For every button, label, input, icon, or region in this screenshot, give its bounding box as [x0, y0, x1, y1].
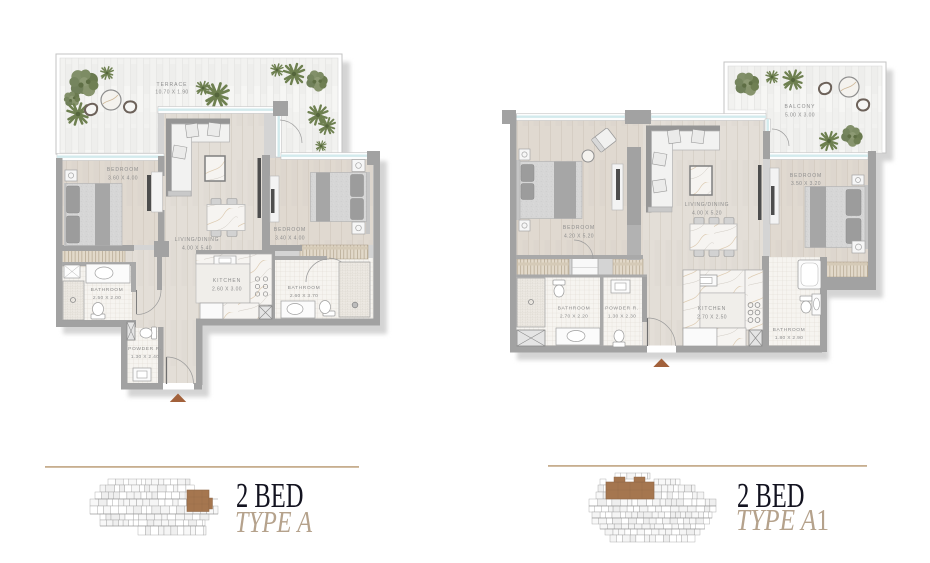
svg-text:3.40 X 4.00: 3.40 X 4.00 — [275, 236, 305, 242]
svg-text:2.70 X 2.20: 2.70 X 2.20 — [560, 314, 588, 320]
svg-text:POWDER R.: POWDER R. — [605, 306, 639, 312]
svg-text:5.00 X 3.00: 5.00 X 3.00 — [785, 113, 815, 119]
svg-text:BEDROOM: BEDROOM — [274, 227, 306, 233]
svg-text:1.30 X 2.40: 1.30 X 2.40 — [131, 354, 159, 360]
svg-text:1.30 X 2.30: 1.30 X 2.30 — [608, 314, 636, 320]
svg-text:TYPE A: TYPE A — [235, 504, 313, 539]
svg-text:POWDER R.: POWDER R. — [128, 346, 162, 352]
svg-text:LIVING/DINING: LIVING/DINING — [685, 202, 729, 208]
svg-text:KITCHEN: KITCHEN — [213, 278, 241, 284]
svg-text:2.50 X 2.00: 2.50 X 2.00 — [93, 295, 121, 301]
svg-text:BEDROOM: BEDROOM — [563, 225, 595, 231]
svg-text:2.60 X 3.70: 2.60 X 3.70 — [290, 293, 318, 299]
svg-text:BEDROOM: BEDROOM — [107, 167, 139, 173]
svg-text:KITCHEN: KITCHEN — [698, 306, 726, 312]
svg-text:3.60 X 4.00: 3.60 X 4.00 — [108, 176, 138, 182]
svg-text:BATHROOM: BATHROOM — [288, 285, 321, 291]
svg-text:BATHROOM: BATHROOM — [91, 287, 124, 293]
svg-text:BATHROOM: BATHROOM — [558, 306, 591, 312]
svg-text:TERRACE: TERRACE — [157, 82, 188, 88]
svg-text:4.00 X 5.40: 4.00 X 5.40 — [182, 246, 212, 252]
svg-text:LIVING/DINING: LIVING/DINING — [175, 237, 219, 243]
svg-text:TYPE A1: TYPE A1 — [736, 502, 829, 537]
svg-text:BALCONY: BALCONY — [785, 104, 816, 110]
svg-text:BATHROOM: BATHROOM — [773, 327, 806, 333]
svg-text:4.20 X 5.20: 4.20 X 5.20 — [564, 234, 594, 240]
svg-text:1.80 X 2.90: 1.80 X 2.90 — [775, 335, 803, 341]
svg-text:3.50 X 3.20: 3.50 X 3.20 — [791, 181, 821, 187]
svg-text:2.60 X 3.00: 2.60 X 3.00 — [212, 287, 242, 293]
svg-text:10.70 X 1.90: 10.70 X 1.90 — [155, 90, 188, 96]
svg-text:2.70 X 2.50: 2.70 X 2.50 — [697, 315, 727, 321]
svg-text:BEDROOM: BEDROOM — [790, 173, 822, 179]
svg-text:4.00 X 5.20: 4.00 X 5.20 — [692, 211, 722, 217]
